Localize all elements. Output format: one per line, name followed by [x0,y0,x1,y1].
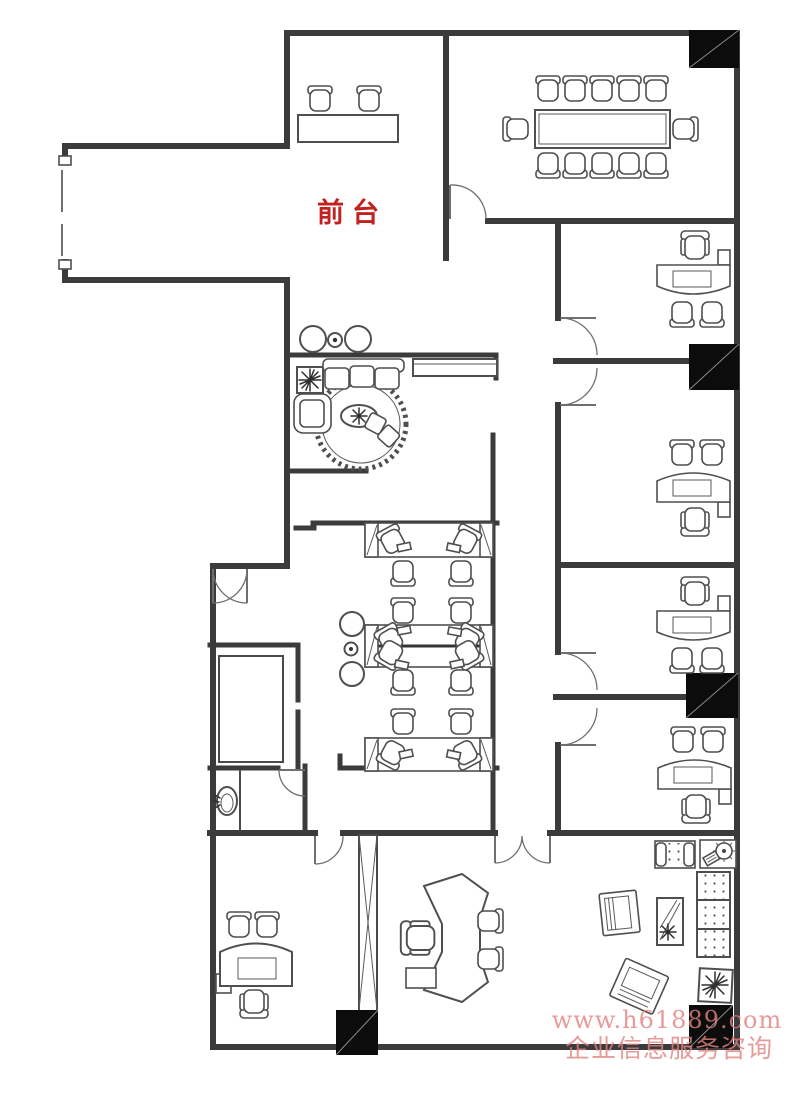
floor-plan-page: 前台 [0,0,799,1093]
executive-double-door [495,836,550,863]
washroom [213,770,240,831]
office-3-door [560,653,597,690]
waiting-stools [300,326,371,352]
workstation-bench-2 [365,598,493,695]
office-4-door [560,708,597,745]
entrance-door [59,156,71,269]
workstation-bench-1 [365,523,493,586]
small-office-door [315,836,343,864]
three-seat-sofa [323,359,404,389]
toilet [213,787,237,815]
private-office-2 [657,440,730,536]
washroom-door [279,770,305,796]
chair-icon [478,909,503,933]
chair-icon [240,990,268,1018]
chair-icon [227,912,251,937]
private-office-1 [657,231,730,327]
open-office-area [340,523,493,771]
conference-door [450,185,486,219]
private-office-3 [657,577,730,673]
display-cabinet [657,898,683,945]
private-office-4 [658,727,731,823]
desk-return [406,968,436,988]
conference-table [535,110,670,148]
chair-icon [255,912,279,937]
workstation-bench-3 [365,709,493,771]
chair-icon [478,947,503,971]
armchair [599,890,640,936]
desk-gadget-tile [700,840,736,868]
watermark-caption: 企业信息服务咨询 [565,1034,773,1063]
lounge-area [294,359,497,469]
watermark-url: www.h61889.com [552,1006,783,1034]
storage-room [219,656,283,762]
storage-unit [219,656,283,762]
office-2-door [560,368,597,405]
potted-plant [297,367,323,393]
office-floor-plan: 前台 [0,0,799,1093]
office-desk [220,944,292,987]
tv-cabinet [413,359,497,376]
hall-double-door [213,569,247,603]
reception-desk [298,115,398,142]
door-jamb [59,156,71,165]
side-seats [340,612,364,686]
potted-plant [698,968,733,1003]
office-1-door [560,318,597,355]
dotted-cabinet [655,841,695,868]
small-office [216,912,292,1018]
chair-icon [357,86,381,111]
chair-icon [401,921,435,955]
conference-room [503,76,698,178]
reception-area: 前台 [298,86,398,352]
glass-partition-x-wall [359,835,377,1010]
bookshelf [697,872,730,957]
chair-icon [308,86,332,111]
door-jamb [59,260,71,269]
armchair [294,394,331,433]
watermark: www.h61889.com 企业信息服务咨询 [552,1006,783,1063]
reception-label: 前台 [317,197,387,229]
executive-office [401,840,736,1015]
